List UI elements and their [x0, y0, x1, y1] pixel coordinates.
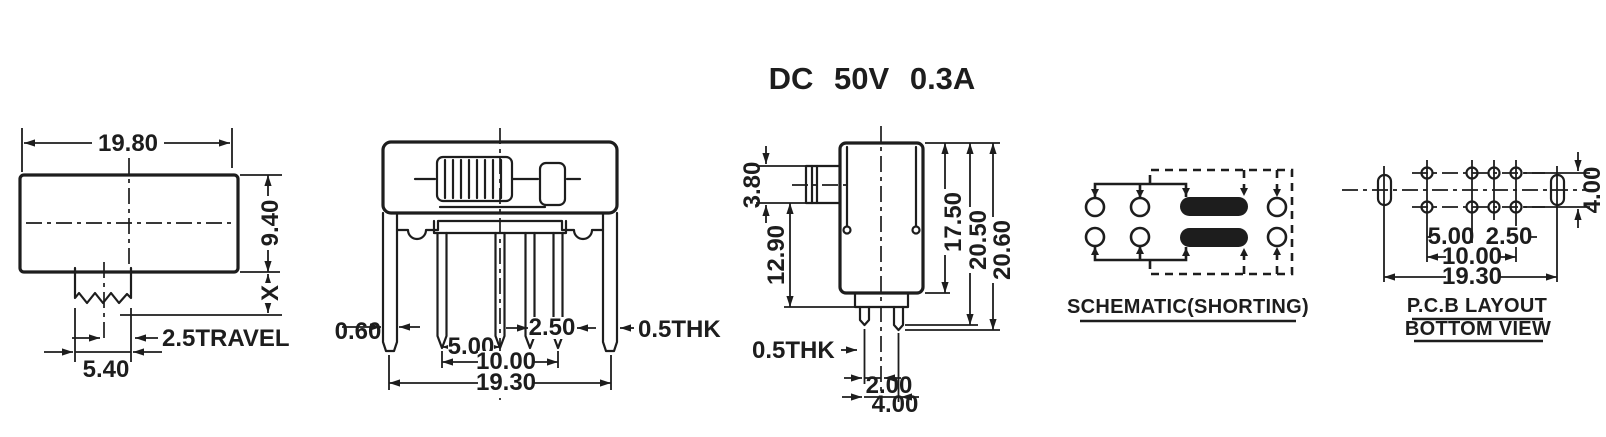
dim-terminal-thickness: 0.5THK	[752, 337, 857, 364]
terminal-circle	[1268, 228, 1286, 246]
knob-width-label: 5.40	[83, 356, 130, 383]
row-pitch-label: 4.00	[872, 391, 919, 418]
wire-dashed-loop	[1150, 170, 1292, 274]
body-lower-label: 12.90	[763, 225, 790, 285]
dim-knob-width: 5.40	[44, 308, 162, 383]
pcb-caption-line1: P.C.B LAYOUT	[1407, 295, 1547, 317]
pin-1	[438, 233, 447, 348]
top-width-label: 19.80	[98, 130, 158, 157]
page-title: DC 50V 0.3A	[769, 61, 976, 96]
terminal-thickness-label: 0.5THK	[752, 337, 835, 364]
overall-width-label: 19.30	[476, 369, 536, 396]
terminal-circle	[1086, 228, 1104, 246]
terminal-circle	[1268, 198, 1286, 216]
top-view: 19.80 9.40 X 2.5TRAVEL	[20, 128, 290, 383]
front-view: 0.60 5.00 2.50 0.5THK 10.00	[335, 128, 722, 400]
slot-span-label: 19.30	[1442, 263, 1502, 290]
body-height-label: 17.50	[940, 192, 967, 252]
terminal-circle	[1131, 198, 1149, 216]
pin-pitch-small-label: 2.50	[529, 314, 576, 341]
mount-leg-right	[603, 213, 617, 351]
slot-end	[540, 163, 565, 205]
shorting-contact-top	[1180, 197, 1248, 216]
knob-projection-label: X	[257, 285, 284, 301]
leg-thickness-label: 0.60	[335, 318, 382, 345]
seam-detail	[913, 227, 920, 234]
terminal-circle	[1086, 198, 1104, 216]
dim-pin-offset: 2.00	[844, 329, 912, 399]
overall-a-label: 20.50	[965, 210, 992, 270]
dim-pin-pitch-small: 2.50	[506, 314, 596, 341]
dim-top-height: 9.40	[240, 175, 284, 272]
top-height-label: 9.40	[257, 200, 284, 247]
dim-slot-span: 19.30	[1384, 263, 1557, 290]
terminal-circle	[1131, 228, 1149, 246]
terminal-thickness-label: 0.5THK	[638, 316, 721, 343]
overall-b-label: 20.60	[989, 220, 1016, 280]
shorting-contact-bottom	[1180, 228, 1248, 247]
pcb-caption-line2: BOTTOM VIEW	[1405, 318, 1551, 340]
dim-top-width: 19.80	[22, 128, 232, 172]
row-pitch-label: 4.00	[1579, 167, 1606, 214]
dim-knob-projection: X	[120, 274, 284, 315]
drawing-sheet: DC 50V 0.3A 19.80 9.40	[0, 0, 1606, 437]
pin-back	[894, 307, 903, 330]
slider-knob	[415, 157, 580, 207]
schematic-caption: SCHEMATIC(SHORTING)	[1067, 296, 1309, 318]
dim-leg-thickness: 0.60	[335, 318, 420, 345]
pin-front	[860, 307, 869, 325]
travel-label: 2.5TRAVEL	[162, 325, 290, 352]
knob-height-label: 3.80	[739, 162, 766, 209]
mount-leg-left	[383, 213, 397, 351]
pcb-layout-view: 4.00 5.00 2.50 10.00 19.30	[1342, 152, 1606, 341]
seam-detail	[844, 227, 851, 234]
schematic-view: SCHEMATIC(SHORTING)	[1067, 170, 1309, 321]
dim-terminal-thickness: 0.5THK	[620, 316, 721, 343]
technical-drawing: DC 50V 0.3A 19.80 9.40	[0, 0, 1606, 437]
actuator-knob	[792, 166, 852, 203]
side-view: 3.80 12.90 17.50 20.50 20.60 0.5TH	[739, 126, 1016, 418]
